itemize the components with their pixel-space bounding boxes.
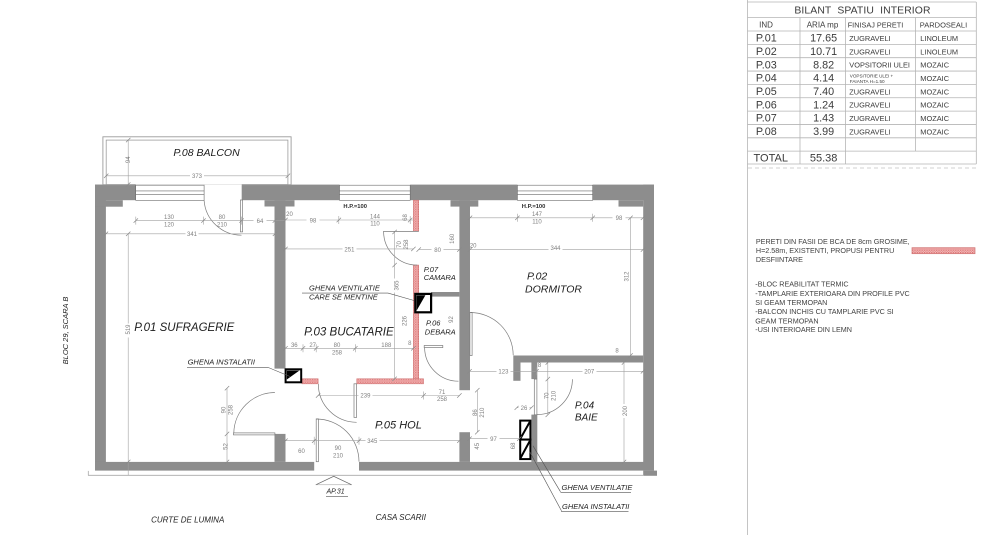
svg-text:P.05: P.05 (756, 86, 777, 98)
svg-text:123: 123 (498, 370, 509, 376)
svg-text:45: 45 (475, 442, 481, 449)
svg-text:8: 8 (408, 341, 412, 347)
svg-text:P.01: P.01 (756, 33, 777, 45)
svg-text:FINISAJ PERETI: FINISAJ PERETI (848, 21, 904, 30)
svg-text:P.05 HOL: P.05 HOL (375, 420, 422, 432)
svg-text:97: 97 (490, 437, 497, 443)
svg-text:160: 160 (450, 233, 456, 244)
svg-text:98: 98 (616, 216, 623, 222)
svg-text:PARDOSEALI: PARDOSEALI (920, 21, 967, 30)
svg-text:MOZAIC: MOZAIC (920, 61, 949, 70)
svg-text:365: 365 (394, 280, 400, 291)
svg-text:P.01 SUFRAGERIE: P.01 SUFRAGERIE (134, 322, 234, 334)
svg-text:80: 80 (219, 215, 226, 221)
svg-text:210: 210 (333, 453, 344, 459)
svg-text:7.40: 7.40 (813, 86, 834, 98)
svg-text:20: 20 (470, 243, 477, 249)
svg-text:226: 226 (403, 315, 409, 326)
svg-text:8: 8 (538, 363, 542, 369)
svg-text:MOZAIC: MOZAIC (920, 127, 949, 136)
svg-text:373: 373 (192, 174, 203, 180)
svg-text:CARE SE MENTINE: CARE SE MENTINE (309, 293, 379, 302)
svg-text:BILANT SPATIU INTERIOR: BILANT SPATIU INTERIOR (794, 5, 931, 16)
svg-text:200: 200 (623, 405, 629, 416)
svg-text:17.65: 17.65 (810, 33, 837, 45)
svg-text:207: 207 (584, 370, 595, 376)
svg-text:BLOC 29, SCARA B: BLOC 29, SCARA B (61, 297, 70, 365)
svg-text:110: 110 (532, 220, 542, 226)
svg-text:P.08 BALCON: P.08 BALCON (173, 147, 240, 159)
svg-text:P.04: P.04 (575, 401, 595, 412)
svg-text:71: 71 (439, 390, 446, 396)
svg-text:3.99: 3.99 (813, 126, 834, 138)
svg-text:P.03 BUCATARIE: P.03 BUCATARIE (304, 327, 394, 339)
svg-text:FAIANTA H=1.50: FAIANTA H=1.50 (850, 79, 885, 84)
svg-text:IND: IND (759, 21, 773, 30)
svg-text:98: 98 (310, 218, 317, 224)
svg-text:258: 258 (437, 397, 448, 403)
svg-text:8.82: 8.82 (813, 59, 834, 71)
svg-text:-USI INTERIOARE DIN LEMN: -USI INTERIOARE DIN LEMN (755, 325, 852, 334)
svg-text:H=2.58m, EXISTENTI, PROPUSI PE: H=2.58m, EXISTENTI, PROPUSI PENTRU (756, 246, 894, 255)
svg-text:PERETI DIN FASII DE BCA DE 8cm: PERETI DIN FASII DE BCA DE 8cm GROSIME, (756, 237, 910, 246)
svg-text:CASA SCARII: CASA SCARII (376, 513, 427, 522)
svg-text:130: 130 (164, 215, 175, 221)
svg-text:8: 8 (615, 349, 619, 355)
svg-text:341: 341 (187, 232, 198, 238)
svg-text:ZUGRAVELI: ZUGRAVELI (849, 34, 890, 43)
svg-text:AP.31: AP.31 (326, 489, 345, 496)
svg-text:86: 86 (473, 409, 479, 416)
svg-text:P.03: P.03 (756, 59, 777, 71)
svg-text:LINOLEUM: LINOLEUM (920, 47, 958, 56)
svg-text:80: 80 (334, 343, 341, 349)
svg-text:64: 64 (257, 219, 264, 225)
svg-text:MOZAIC: MOZAIC (920, 87, 949, 96)
svg-text:4.14: 4.14 (813, 73, 834, 85)
svg-text:LINOLEUM: LINOLEUM (920, 34, 958, 43)
svg-text:210: 210 (217, 222, 228, 228)
svg-text:26: 26 (521, 406, 528, 412)
svg-text:70: 70 (544, 392, 550, 399)
svg-text:SI GEAM TERMOPAN: SI GEAM TERMOPAN (755, 298, 827, 307)
svg-text:68: 68 (511, 442, 517, 449)
svg-text:CURTE DE LUMINA: CURTE DE LUMINA (151, 516, 224, 525)
svg-text:110: 110 (370, 222, 380, 228)
svg-text:MOZAIC: MOZAIC (920, 101, 949, 110)
svg-text:210: 210 (552, 390, 558, 401)
svg-text:94: 94 (126, 156, 132, 163)
svg-text:ZUGRAVELI: ZUGRAVELI (849, 87, 890, 96)
svg-text:GHENA INSTALATII: GHENA INSTALATII (188, 358, 255, 367)
svg-text:ZUGRAVELI: ZUGRAVELI (849, 47, 890, 56)
svg-text:20: 20 (286, 212, 293, 218)
svg-text:147: 147 (532, 212, 543, 218)
svg-text:P.06: P.06 (426, 319, 441, 328)
svg-text:BAIE: BAIE (575, 413, 598, 424)
svg-text:1.43: 1.43 (813, 113, 834, 125)
svg-text:251: 251 (344, 247, 355, 253)
svg-text:H.P.=100: H.P.=100 (522, 204, 546, 210)
svg-text:CAMARA: CAMARA (424, 273, 456, 282)
svg-text:80: 80 (434, 248, 441, 254)
svg-text:P.04: P.04 (756, 73, 777, 85)
svg-text:210: 210 (480, 407, 486, 418)
svg-text:70: 70 (397, 241, 403, 248)
svg-text:GHENA INSTALATII: GHENA INSTALATII (562, 502, 629, 511)
svg-text:312: 312 (625, 271, 631, 282)
svg-text:90: 90 (335, 446, 342, 452)
svg-text:DORMITOR: DORMITOR (525, 284, 582, 296)
svg-text:55.38: 55.38 (810, 152, 838, 164)
svg-text:92: 92 (449, 316, 455, 323)
svg-text:P.02: P.02 (756, 46, 777, 58)
svg-text:P.02: P.02 (527, 271, 547, 283)
svg-text:ARIA mp: ARIA mp (807, 21, 839, 30)
svg-text:P.07: P.07 (756, 113, 777, 125)
svg-text:GHENA VENTILATIE: GHENA VENTILATIE (562, 483, 634, 492)
svg-text:239: 239 (360, 394, 371, 400)
svg-text:MOZAIC: MOZAIC (920, 114, 949, 123)
svg-text:90: 90 (222, 406, 228, 413)
svg-text:120: 120 (164, 222, 175, 228)
svg-text:MOZAIC: MOZAIC (920, 74, 949, 83)
svg-text:H.P.=100: H.P.=100 (343, 204, 367, 210)
svg-text:GHENA VENTILATIE: GHENA VENTILATIE (309, 283, 381, 292)
svg-text:P.08: P.08 (756, 126, 777, 138)
svg-text:TOTAL: TOTAL (754, 152, 788, 164)
svg-text:258: 258 (404, 239, 410, 250)
svg-text:258: 258 (332, 350, 343, 356)
svg-text:-TAMPLARIE EXTERIOARA DIN PROF: -TAMPLARIE EXTERIOARA DIN PROFILE PVC (755, 289, 909, 298)
svg-text:519: 519 (126, 324, 132, 335)
svg-text:344: 344 (550, 246, 561, 252)
svg-text:188: 188 (381, 343, 392, 349)
svg-text:52: 52 (224, 443, 230, 450)
svg-text:VOPSITORII ULEI: VOPSITORII ULEI (849, 61, 910, 70)
svg-text:-BLOC REABILITAT TERMIC: -BLOC REABILITAT TERMIC (755, 280, 848, 289)
svg-text:-BALCON INCHIS CU TAMPLARIE PV: -BALCON INCHIS CU TAMPLARIE PVC SI (755, 307, 893, 316)
svg-text:ZUGRAVELI: ZUGRAVELI (849, 127, 890, 136)
svg-text:144: 144 (370, 214, 381, 220)
svg-text:P.06: P.06 (756, 99, 777, 111)
svg-text:DEBARA: DEBARA (425, 328, 456, 337)
svg-text:ZUGRAVELI: ZUGRAVELI (849, 114, 890, 123)
svg-text:345: 345 (367, 439, 378, 445)
svg-text:60: 60 (298, 449, 305, 455)
svg-text:1.24: 1.24 (813, 99, 834, 111)
svg-text:DESFIINTARE: DESFIINTARE (756, 255, 803, 264)
svg-text:68: 68 (403, 214, 409, 221)
svg-text:27: 27 (309, 343, 316, 349)
svg-text:258: 258 (229, 404, 235, 415)
svg-text:ZUGRAVELI: ZUGRAVELI (849, 101, 890, 110)
svg-text:10.71: 10.71 (810, 46, 837, 58)
svg-text:36: 36 (291, 343, 298, 349)
